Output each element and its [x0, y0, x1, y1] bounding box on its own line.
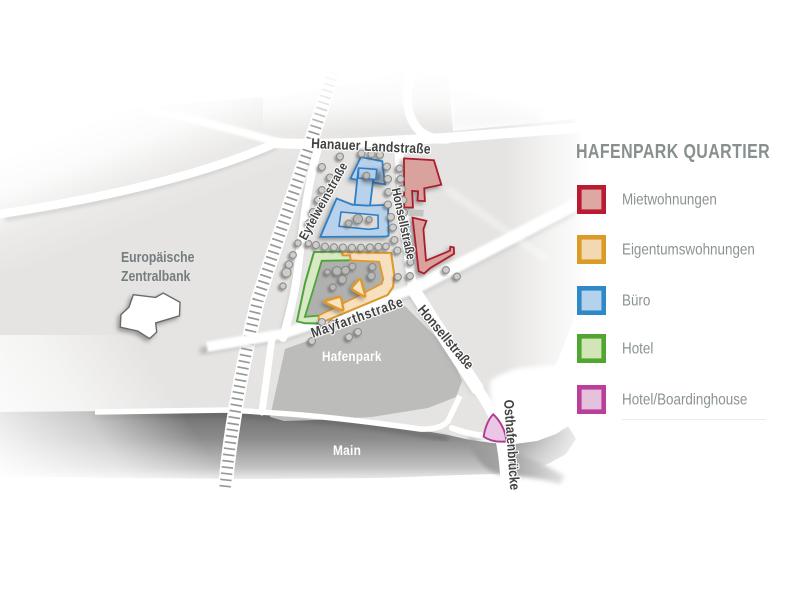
- svg-text:Hotel/Boardinghouse: Hotel/Boardinghouse: [622, 391, 747, 408]
- svg-text:Mietwohnungen: Mietwohnungen: [622, 191, 717, 208]
- svg-text:Büro: Büro: [622, 292, 650, 309]
- svg-text:Zentralbank: Zentralbank: [121, 268, 191, 284]
- svg-text:Main: Main: [333, 442, 361, 458]
- svg-text:Hafenpark: Hafenpark: [322, 348, 382, 364]
- svg-text:HAFENPARK QUARTIER: HAFENPARK QUARTIER: [576, 139, 770, 162]
- svg-text:Eigentumswohnungen: Eigentumswohnungen: [622, 241, 755, 258]
- svg-text:Europäische: Europäische: [121, 249, 194, 265]
- svg-text:Hotel: Hotel: [622, 340, 653, 357]
